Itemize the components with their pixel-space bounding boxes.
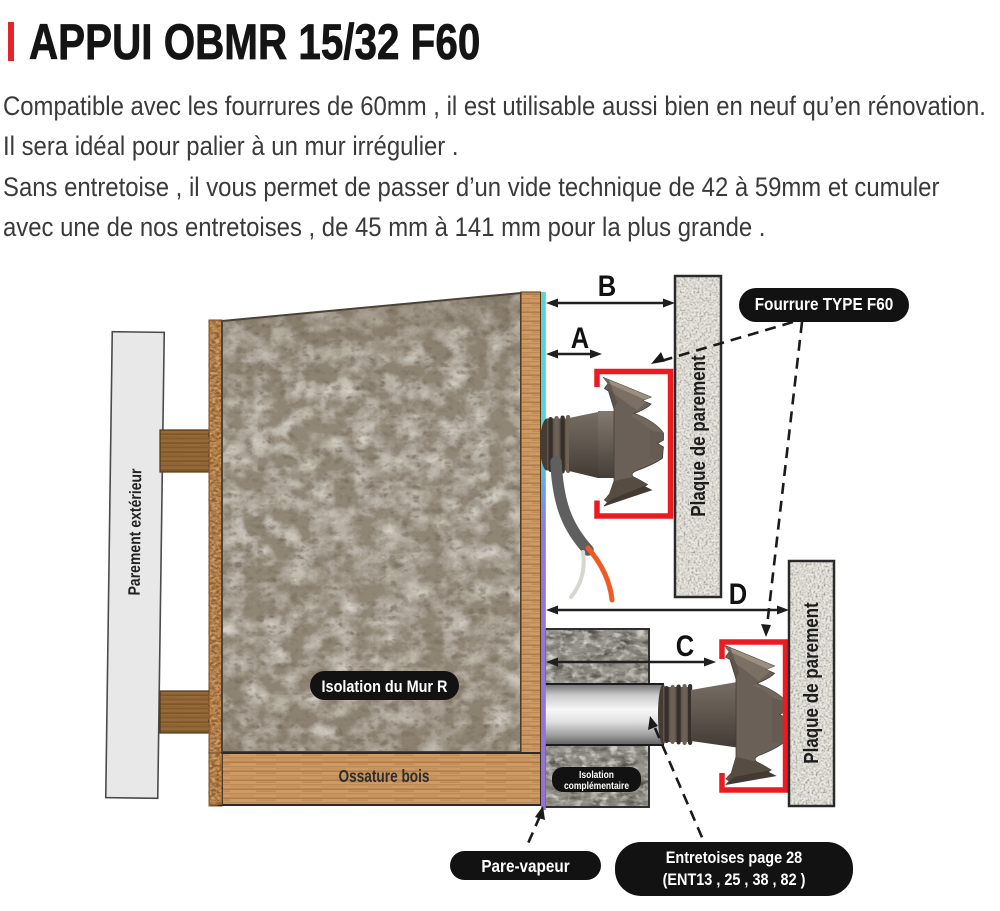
svg-text:Isolation du Mur R: Isolation du Mur R [322,678,449,696]
svg-text:B: B [598,269,616,302]
svg-text:(ENT13 , 25 , 38 , 82 ): (ENT13 , 25 , 38 , 82 ) [663,871,806,889]
svg-text:A: A [571,321,589,354]
svg-text:Parement extérieur: Parement extérieur [126,468,146,595]
svg-text:C: C [676,629,694,662]
svg-text:Pare-vapeur: Pare-vapeur [481,856,570,876]
svg-text:complémentaire: complémentaire [564,780,629,791]
svg-text:Plaque de parement: Plaque de parement [687,355,710,516]
svg-text:D: D [729,577,747,610]
svg-text:Entretoises page 28: Entretoises page 28 [666,849,803,867]
svg-text:Isolation: Isolation [579,769,614,780]
svg-text:Plaque de parement: Plaque de parement [800,602,823,763]
svg-text:Fourrure TYPE F60: Fourrure TYPE F60 [755,294,893,314]
svg-text:Ossature bois: Ossature bois [338,768,429,787]
